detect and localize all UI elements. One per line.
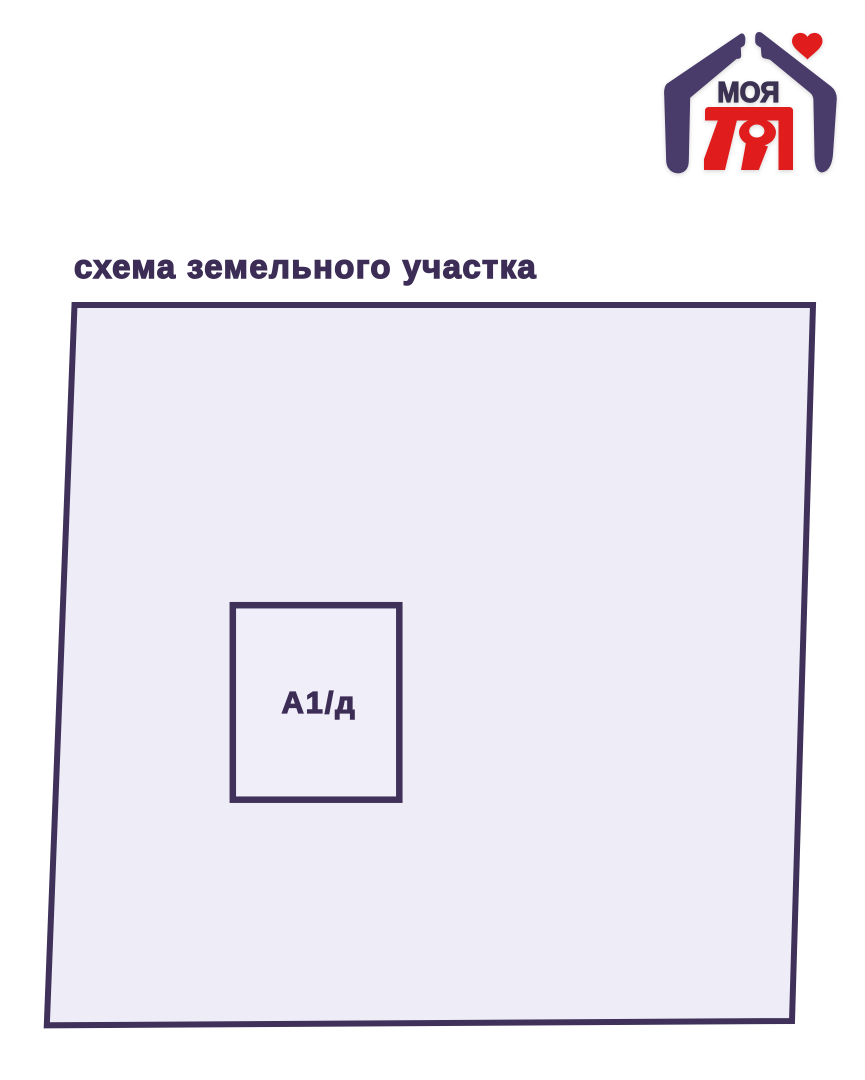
svg-text:МОЯ: МОЯ (717, 76, 779, 108)
